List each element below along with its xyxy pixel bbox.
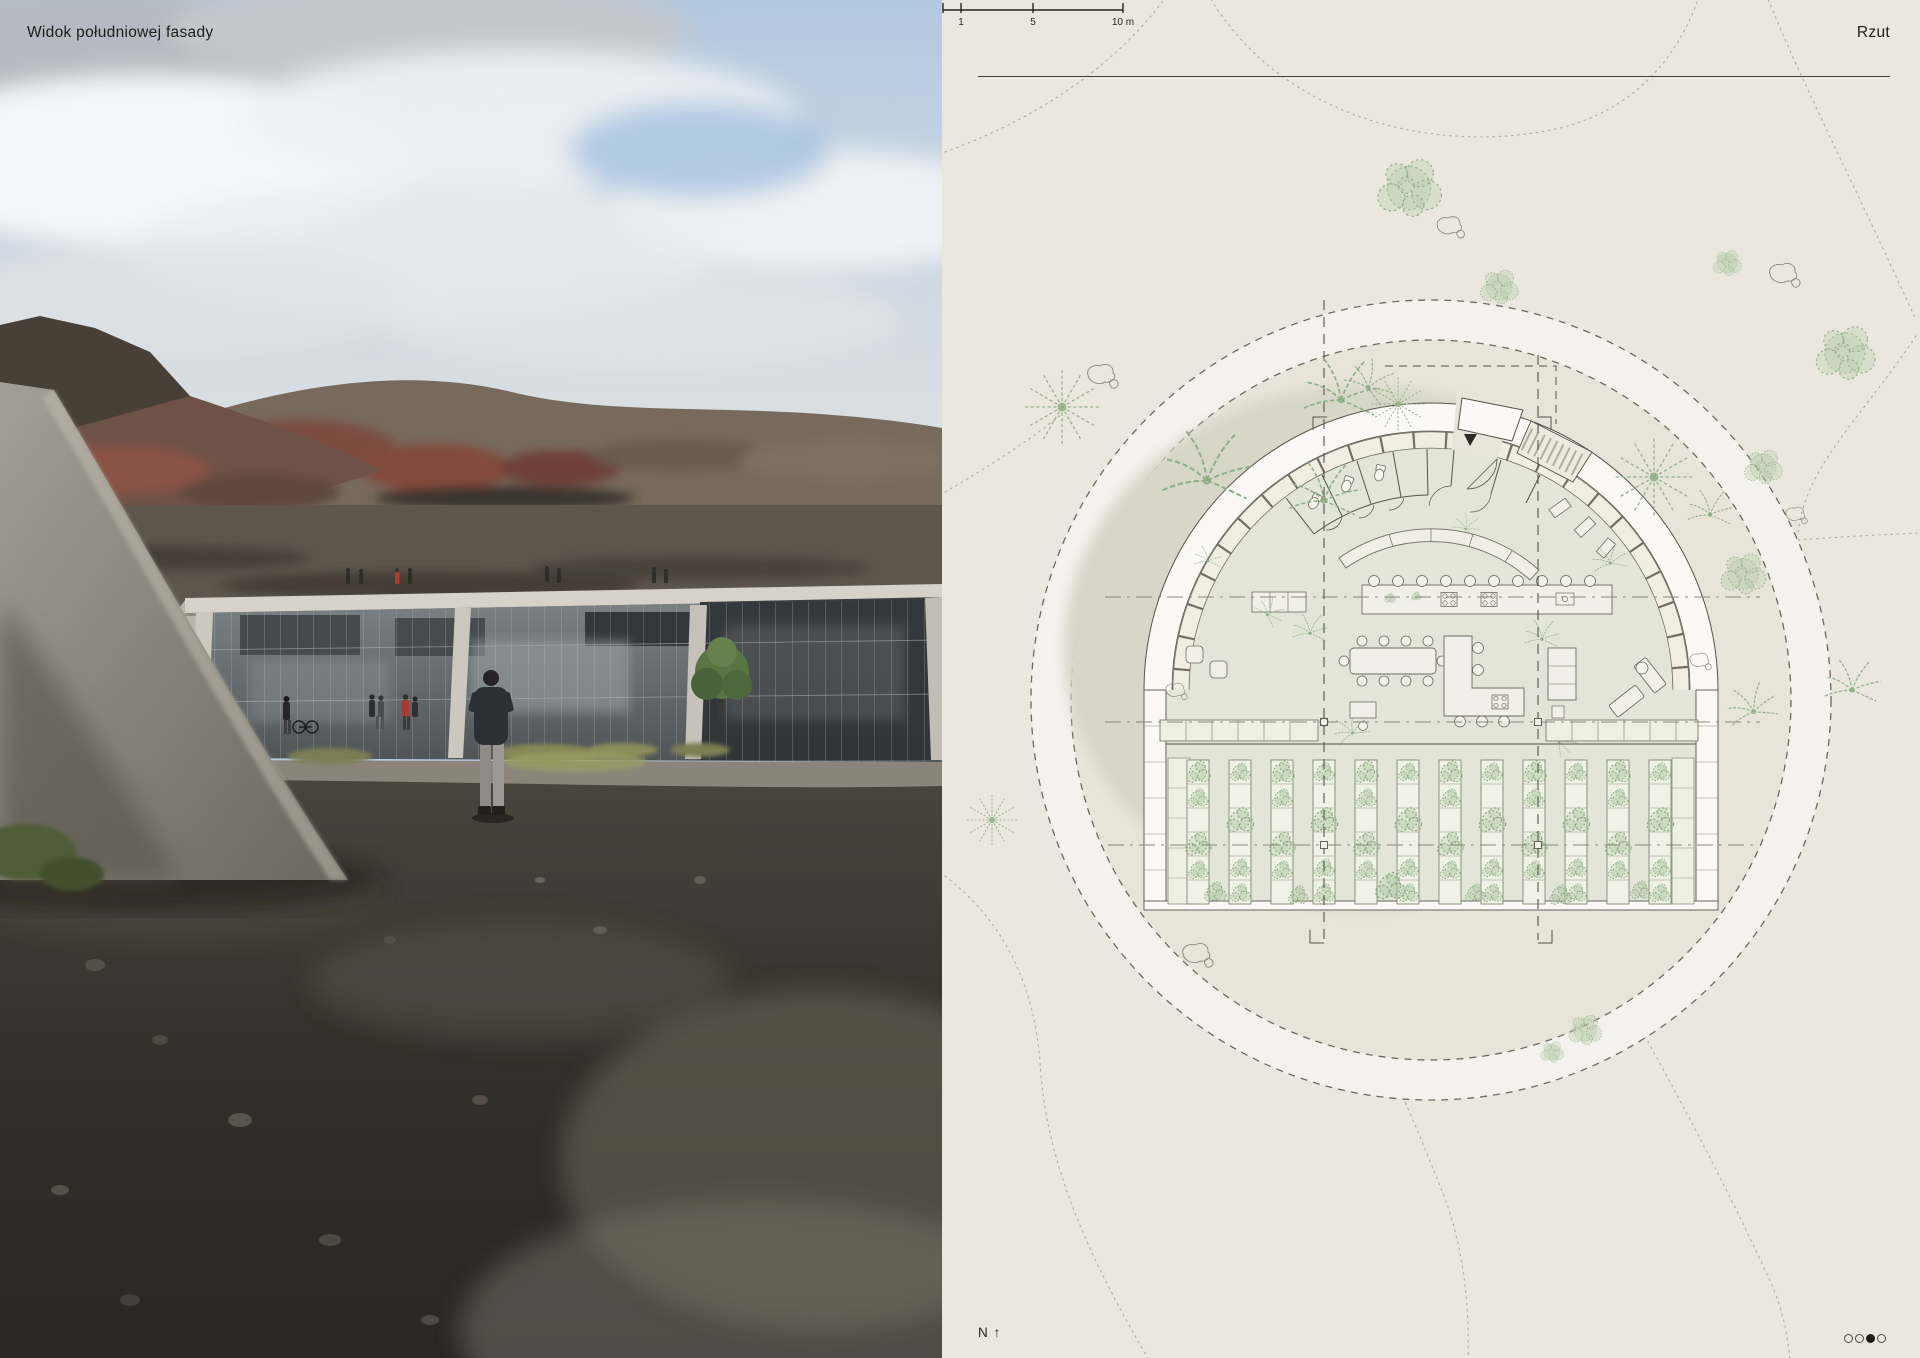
pagination-dot-2[interactable] <box>1855 1334 1864 1343</box>
plan-panel: Rzut N ↑ 1 5 10 m <box>942 0 1920 1358</box>
desk <box>1350 702 1376 718</box>
pagination-dots <box>1844 1334 1886 1343</box>
scale-label-5: 5 <box>1030 17 1036 28</box>
pagination-dot-3[interactable] <box>1866 1334 1875 1343</box>
side-counter <box>1548 648 1576 700</box>
scale-label-1: 1 <box>958 17 964 28</box>
pagination-dot-1[interactable] <box>1844 1334 1853 1343</box>
photo-title: Widok południowej fasady <box>27 24 213 42</box>
pagination-dot-4[interactable] <box>1877 1334 1886 1343</box>
scale-label-10m: 10 m <box>1112 17 1134 28</box>
north-arrow-icon: ↑ <box>994 1324 1002 1340</box>
site-plan-drawing <box>942 0 1920 1358</box>
scale-bar: 1 5 10 m <box>942 0 1142 30</box>
facade-building <box>150 584 942 762</box>
cabinets <box>1252 592 1306 612</box>
photo-panel: Widok południowej fasady <box>0 0 942 1358</box>
north-label: N <box>978 1325 989 1340</box>
header-rule <box>978 76 1890 77</box>
north-indicator: N ↑ <box>978 1324 1002 1340</box>
presentation-board: Widok południowej fasady <box>0 0 1920 1358</box>
plan-title: Rzut <box>1857 24 1890 42</box>
facade-photo-illustration <box>0 0 942 1358</box>
